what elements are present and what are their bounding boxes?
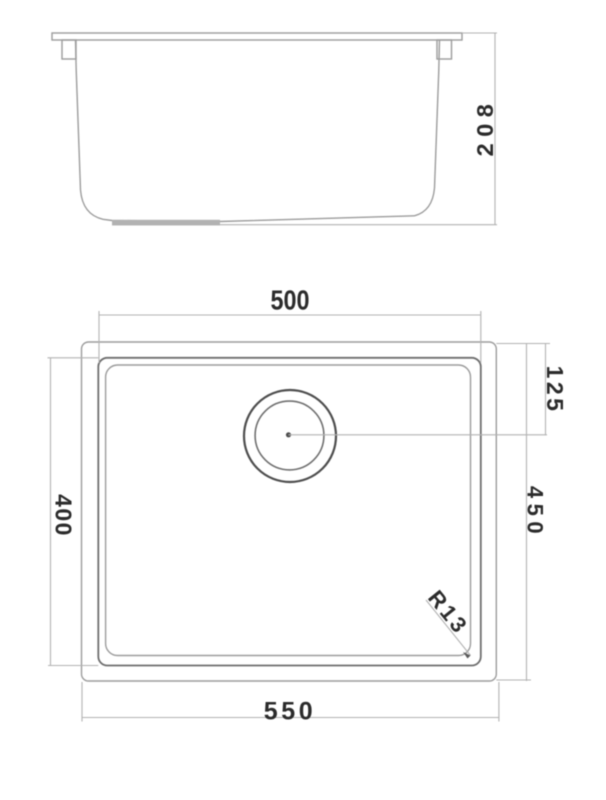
svg-text:208: 208 xyxy=(472,98,498,157)
svg-text:400: 400 xyxy=(51,494,77,537)
svg-text:125: 125 xyxy=(542,366,568,415)
svg-text:550: 550 xyxy=(264,698,317,726)
svg-text:450: 450 xyxy=(523,486,548,539)
svg-text:500: 500 xyxy=(271,286,310,316)
svg-text:R13: R13 xyxy=(423,585,473,639)
